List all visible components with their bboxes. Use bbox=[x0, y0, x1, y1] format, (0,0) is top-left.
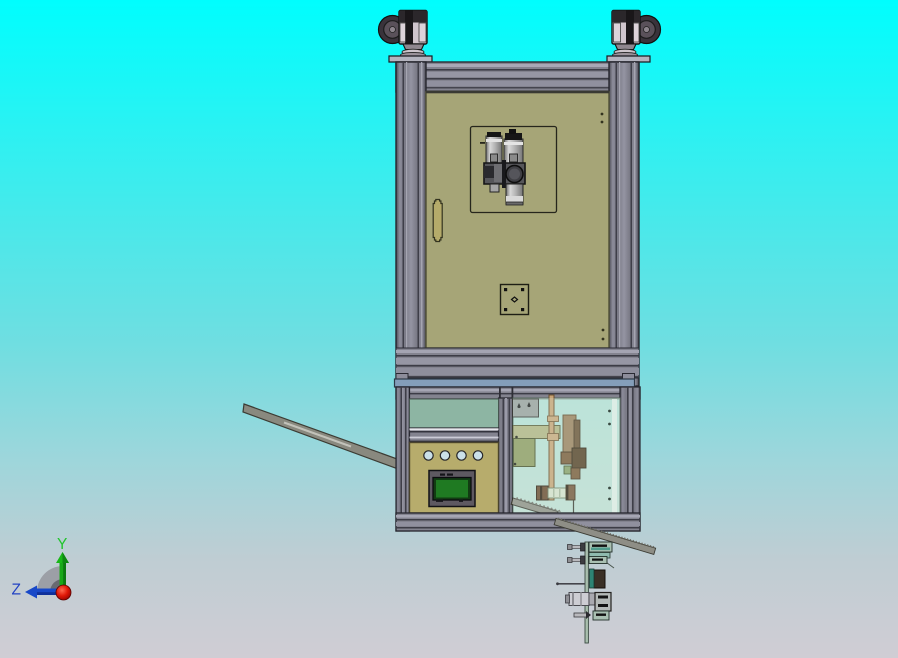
svg-text:Y: Y bbox=[57, 536, 67, 553]
svg-text:Z: Z bbox=[12, 582, 21, 599]
